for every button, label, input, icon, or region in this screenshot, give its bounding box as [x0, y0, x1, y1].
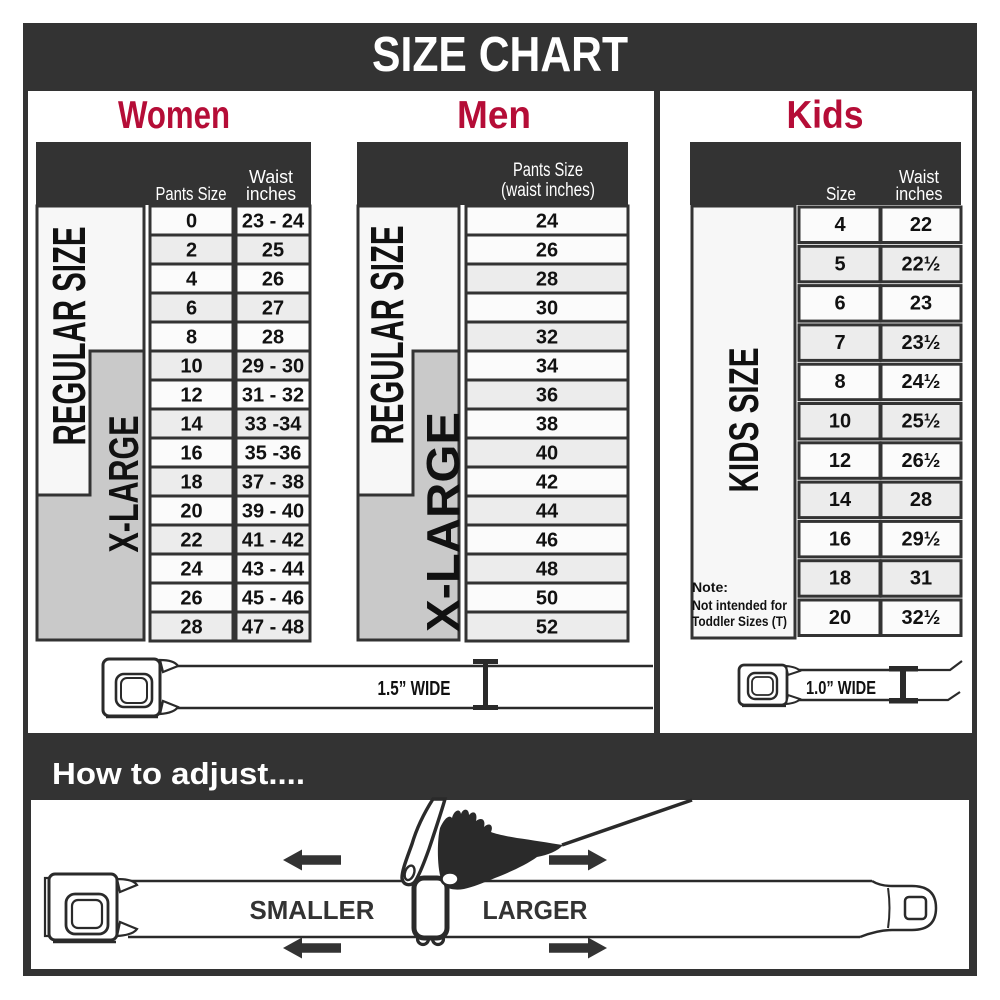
svg-text:LARGER: LARGER: [483, 895, 588, 925]
svg-text:20: 20: [180, 501, 202, 523]
svg-text:5: 5: [834, 253, 845, 275]
svg-text:27: 27: [262, 298, 284, 320]
svg-text:41 - 42: 41 - 42: [242, 530, 304, 552]
svg-text:33 -34: 33 -34: [245, 414, 303, 436]
svg-text:36: 36: [536, 385, 558, 407]
svg-text:22: 22: [180, 530, 202, 552]
svg-text:1.5” WIDE: 1.5” WIDE: [378, 678, 451, 700]
svg-text:24: 24: [180, 559, 203, 581]
svg-text:4: 4: [186, 269, 198, 291]
svg-text:Men: Men: [457, 94, 531, 137]
svg-text:8: 8: [186, 327, 197, 349]
svg-text:10: 10: [180, 356, 202, 378]
svg-text:16: 16: [180, 443, 202, 465]
svg-text:28: 28: [262, 327, 284, 349]
svg-text:6: 6: [186, 298, 197, 320]
svg-text:How to adjust....: How to adjust....: [52, 756, 305, 791]
svg-text:23: 23: [910, 293, 932, 315]
svg-text:KIDS SIZE: KIDS SIZE: [720, 348, 767, 493]
svg-text:28: 28: [536, 269, 558, 291]
svg-text:Pants Size: Pants Size: [513, 160, 583, 181]
svg-text:0: 0: [186, 211, 197, 233]
svg-text:48: 48: [536, 559, 558, 581]
svg-text:23 - 24: 23 - 24: [242, 211, 305, 233]
svg-text:25: 25: [262, 240, 284, 262]
svg-text:SMALLER: SMALLER: [250, 895, 375, 925]
svg-text:40: 40: [536, 443, 558, 465]
svg-text:4: 4: [834, 214, 846, 236]
svg-text:29 - 30: 29 - 30: [242, 356, 304, 378]
svg-text:29½: 29½: [902, 528, 941, 550]
svg-text:Toddler Sizes (T): Toddler Sizes (T): [692, 614, 787, 629]
svg-text:SIZE CHART: SIZE CHART: [372, 28, 628, 82]
svg-text:7: 7: [834, 332, 845, 354]
svg-text:37 - 38: 37 - 38: [242, 472, 304, 494]
svg-text:20: 20: [829, 607, 851, 629]
svg-text:inches: inches: [896, 184, 943, 204]
svg-text:25½: 25½: [902, 411, 941, 433]
svg-text:14: 14: [829, 489, 852, 511]
svg-text:X-LARGE: X-LARGE: [417, 412, 469, 632]
svg-text:inches: inches: [246, 184, 296, 204]
svg-text:52: 52: [536, 617, 558, 639]
svg-text:Women: Women: [118, 94, 230, 137]
svg-text:42: 42: [536, 472, 558, 494]
svg-text:26: 26: [536, 240, 558, 262]
svg-text:Note:: Note:: [692, 580, 728, 595]
svg-text:43 - 44: 43 - 44: [242, 559, 305, 581]
svg-text:50: 50: [536, 588, 558, 610]
svg-text:REGULAR SIZE: REGULAR SIZE: [361, 226, 413, 445]
svg-text:18: 18: [829, 568, 851, 590]
svg-text:44: 44: [536, 501, 559, 523]
svg-text:14: 14: [180, 414, 203, 436]
svg-text:31: 31: [910, 568, 932, 590]
svg-text:8: 8: [834, 371, 845, 393]
svg-text:10: 10: [829, 411, 851, 433]
svg-text:28: 28: [910, 489, 932, 511]
svg-text:1.0” WIDE: 1.0” WIDE: [806, 678, 876, 698]
svg-text:16: 16: [829, 528, 851, 550]
svg-text:46: 46: [536, 530, 558, 552]
svg-text:28: 28: [180, 617, 202, 639]
svg-text:Size: Size: [826, 184, 856, 204]
svg-text:2: 2: [186, 240, 197, 262]
svg-text:Not intended for: Not intended for: [692, 598, 788, 613]
svg-text:X-LARGE: X-LARGE: [100, 416, 147, 553]
svg-text:32: 32: [536, 327, 558, 349]
svg-text:6: 6: [834, 293, 845, 315]
svg-text:31 - 32: 31 - 32: [242, 385, 304, 407]
svg-text:30: 30: [536, 298, 558, 320]
svg-text:26: 26: [180, 588, 202, 610]
svg-text:39 - 40: 39 - 40: [242, 501, 304, 523]
svg-text:22: 22: [910, 214, 932, 236]
svg-text:18: 18: [180, 472, 202, 494]
svg-text:Pants Size: Pants Size: [156, 184, 227, 204]
svg-text:24: 24: [536, 211, 559, 233]
svg-text:45 - 46: 45 - 46: [242, 588, 304, 610]
svg-text:12: 12: [829, 450, 851, 472]
svg-text:(waist inches): (waist inches): [501, 180, 595, 201]
svg-text:26½: 26½: [902, 450, 941, 472]
svg-text:22½: 22½: [902, 253, 941, 275]
svg-text:23½: 23½: [902, 332, 941, 354]
svg-text:34: 34: [536, 356, 559, 378]
svg-text:Kids: Kids: [787, 94, 864, 137]
svg-text:REGULAR SIZE: REGULAR SIZE: [43, 227, 95, 446]
svg-text:38: 38: [536, 414, 558, 436]
svg-text:35 -36: 35 -36: [245, 443, 302, 465]
svg-text:24½: 24½: [902, 371, 941, 393]
svg-text:12: 12: [180, 385, 202, 407]
svg-text:47 - 48: 47 - 48: [242, 617, 304, 639]
svg-text:32½: 32½: [902, 607, 941, 629]
svg-text:26: 26: [262, 269, 284, 291]
